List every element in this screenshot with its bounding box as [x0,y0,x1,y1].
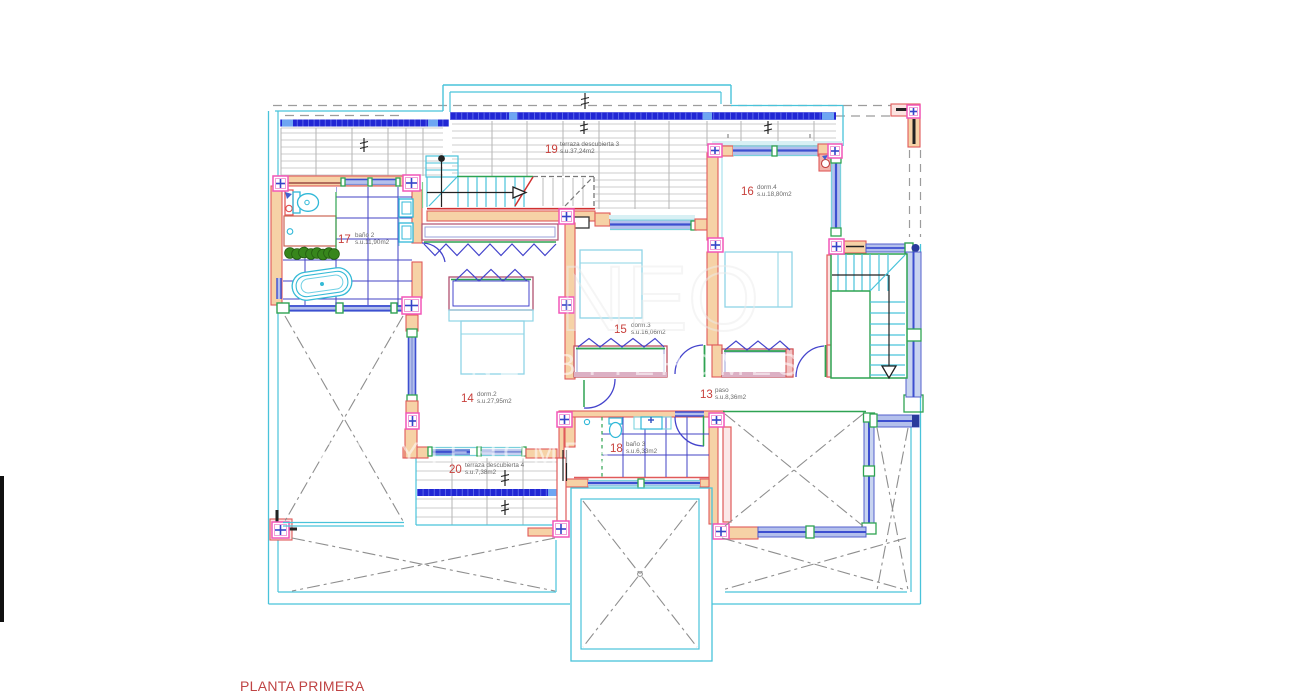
svg-text:s.u.7,38m2: s.u.7,38m2 [465,469,497,476]
svg-text:14: 14 [461,393,474,405]
svg-text:NEO: NEO [560,248,759,350]
svg-text:13: 13 [700,389,713,401]
svg-text:paso: paso [715,387,729,394]
svg-text:s.u.6,33m2: s.u.6,33m2 [626,448,658,455]
svg-text:NEOBYTEHOMES: NEOBYTEHOMES [290,437,615,470]
svg-text:s.u.8,36m2: s.u.8,36m2 [715,394,747,401]
svg-text:terraza descubierta 3: terraza descubierta 3 [560,141,620,148]
svg-text:19: 19 [545,144,558,156]
svg-text:baño 2: baño 2 [355,232,375,239]
svg-text:NEOBYTEHOMES: NEOBYTEHOMES [470,347,804,382]
svg-text:s.u.11,90m2: s.u.11,90m2 [355,239,390,246]
svg-text:s.u.37,24m2: s.u.37,24m2 [560,148,595,155]
svg-text:PLANTA PRIMERA: PLANTA PRIMERA [240,678,365,694]
svg-text:s.u.18,80m2: s.u.18,80m2 [757,191,792,198]
svg-text:dorm.2: dorm.2 [477,391,497,398]
svg-text:16: 16 [741,186,754,198]
svg-text:dorm.4: dorm.4 [757,184,777,191]
svg-text:17: 17 [338,234,351,246]
svg-text:baño 3: baño 3 [626,441,646,448]
svg-text:s.u.27,95m2: s.u.27,95m2 [477,398,512,405]
